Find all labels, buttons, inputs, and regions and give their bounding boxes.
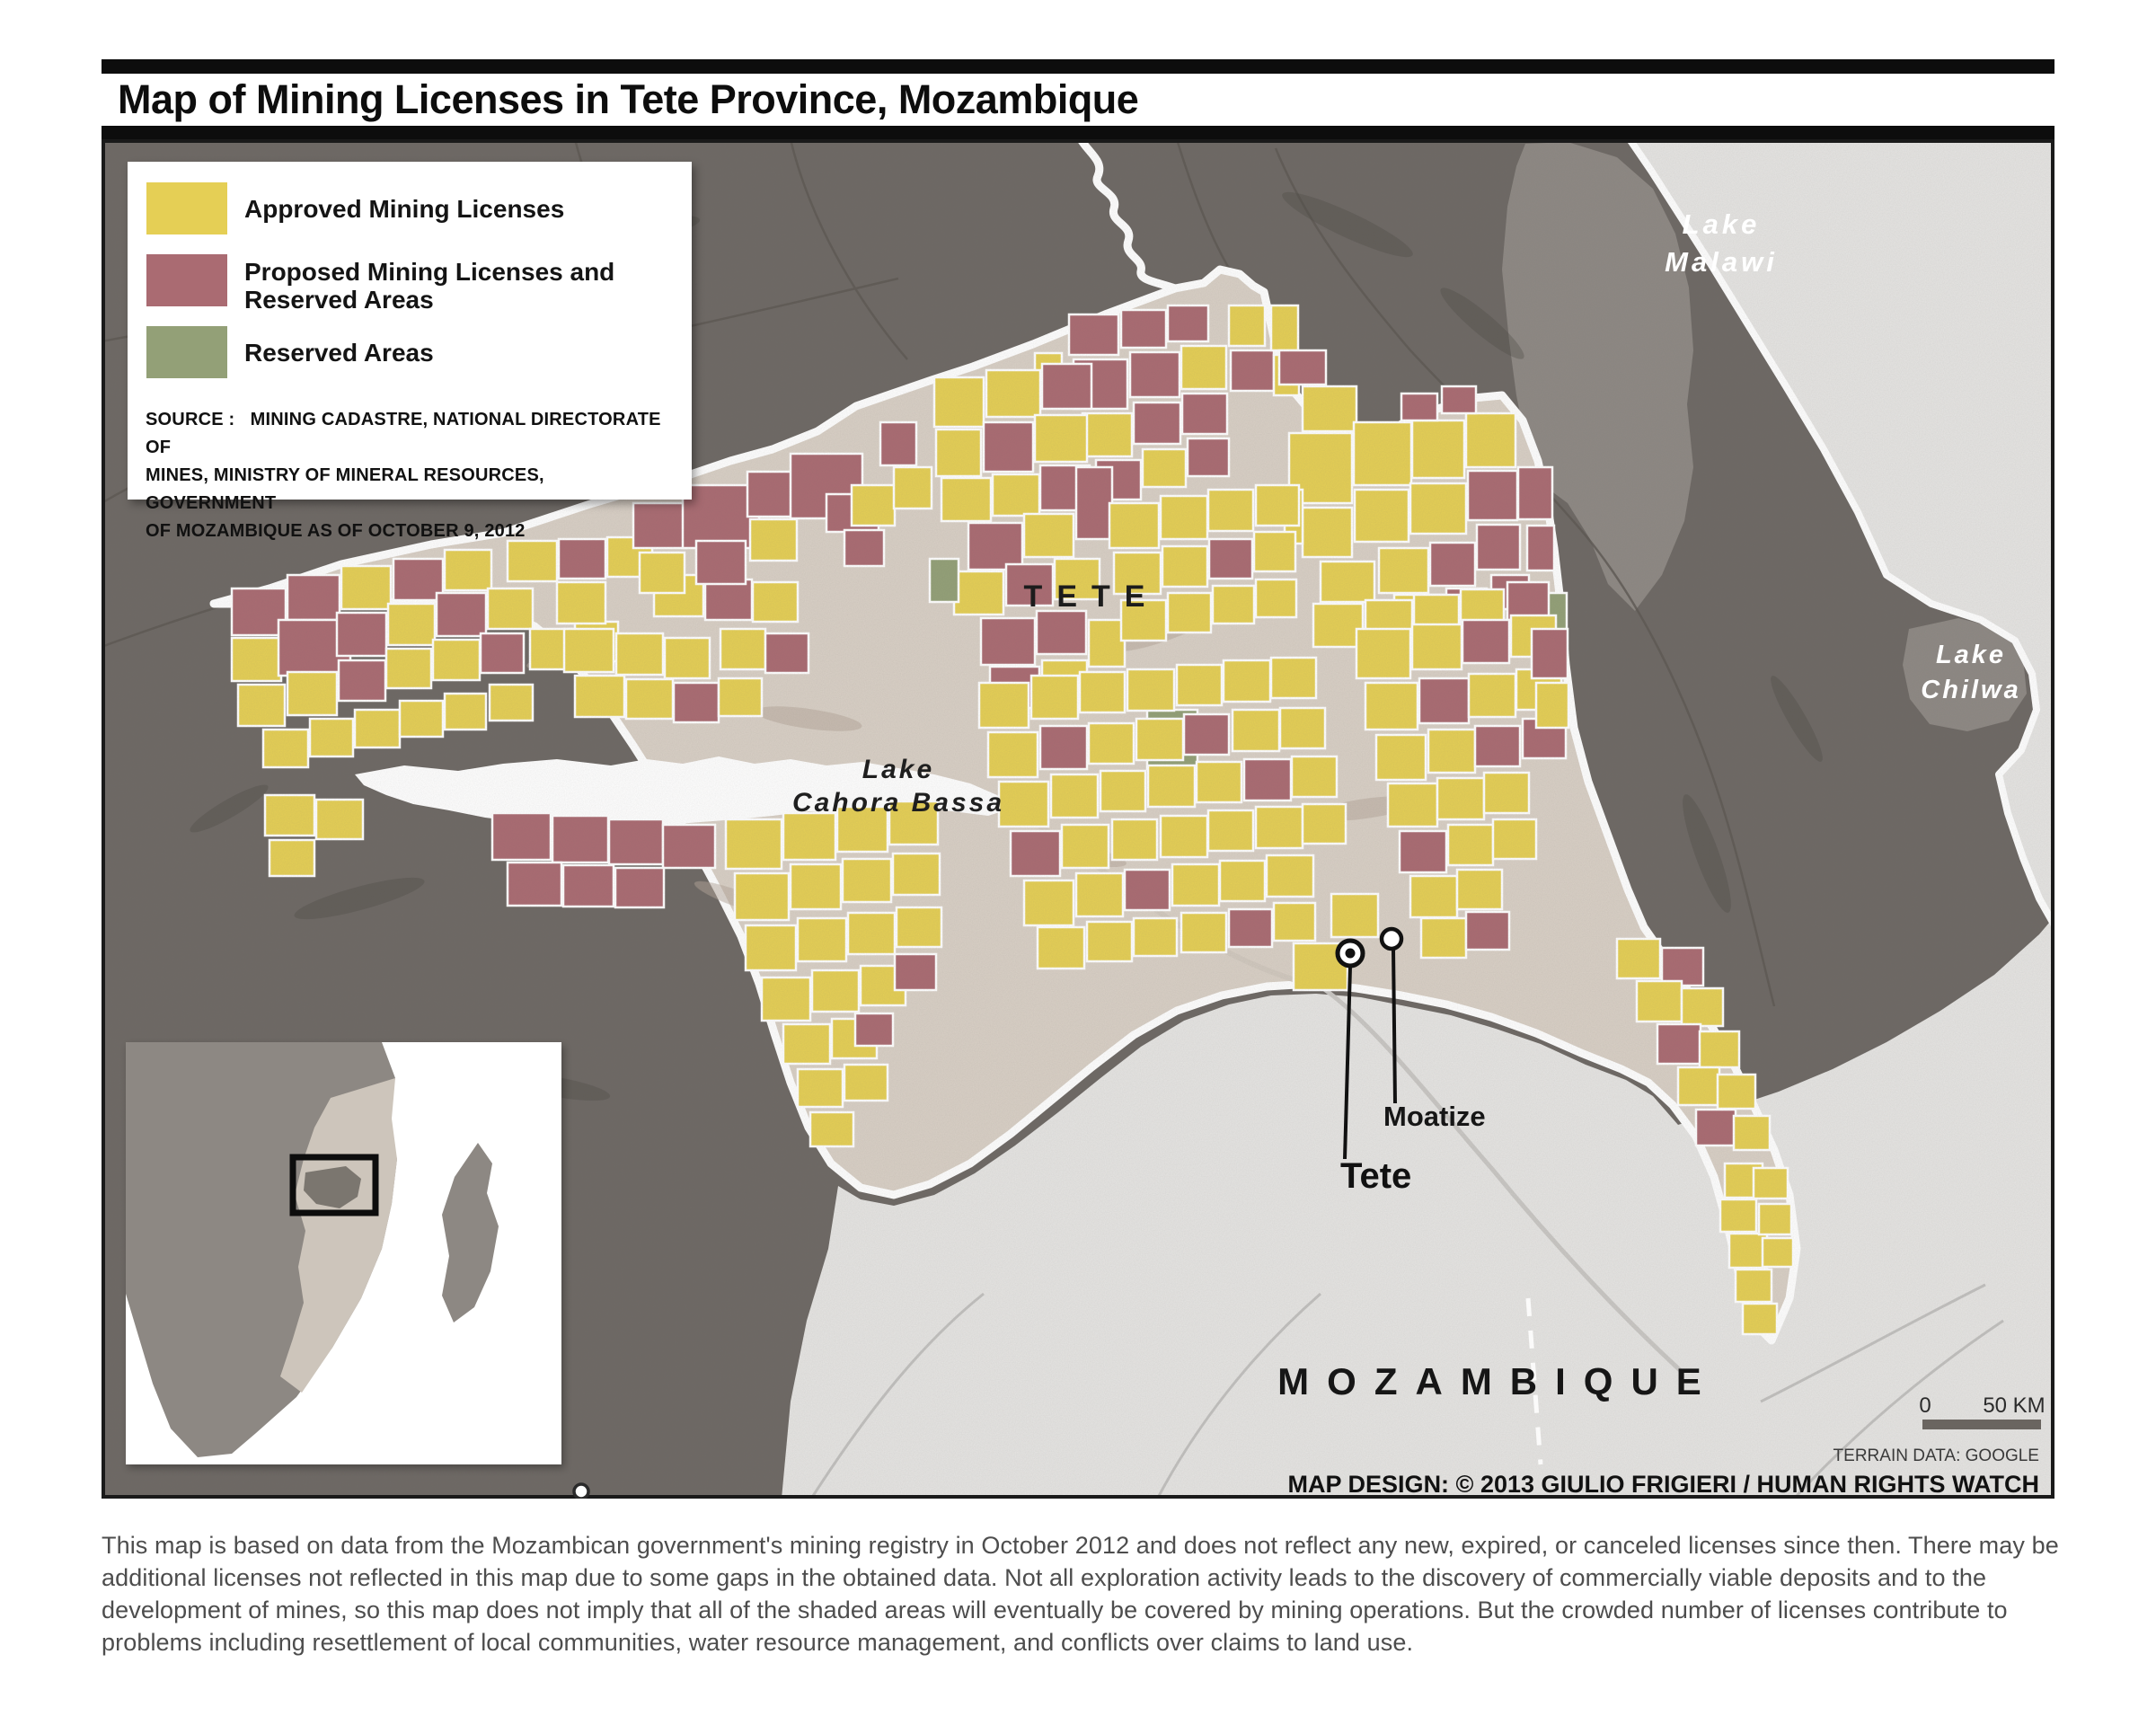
page: { "header": { "title": "Map of Mining Li… <box>0 0 2156 1725</box>
title-top-bar <box>102 59 2054 74</box>
tete-dot-icon <box>1346 949 1356 959</box>
region-label-tete: TETE <box>1024 579 1160 614</box>
inset-locator-map <box>126 1042 561 1464</box>
terrain-credit: TERRAIN DATA: GOOGLE <box>1833 1446 2039 1465</box>
scale-bar-rule <box>1922 1420 2041 1429</box>
moatize-dot-icon <box>1382 929 1401 949</box>
source-line-3: OF MOZAMBIQUE AS OF OCTOBER 9, 2012 <box>146 517 667 545</box>
page-title: Map of Mining Licenses in Tete Province,… <box>118 76 1138 123</box>
legend-swatch-approved <box>146 182 227 234</box>
design-credit: MAP DESIGN: © 2013 GIULIO FRIGIERI / HUM… <box>1288 1471 2039 1498</box>
edge-circle-icon <box>574 1484 588 1499</box>
lake-cahora-label-line2: Cahora Bassa <box>792 788 1004 818</box>
source-line-1: SOURCE : MINING CADASTRE, NATIONAL DIREC… <box>146 406 667 462</box>
legend-label-reserved: Reserved Areas <box>244 339 667 367</box>
legend-swatch-proposed <box>146 254 227 306</box>
legend-swatch-reserved <box>146 326 227 378</box>
legend: Approved Mining Licenses Proposed Mining… <box>128 162 692 500</box>
city-label-moatize: Moatize <box>1383 1101 1486 1132</box>
legend-label-approved: Approved Mining Licenses <box>244 195 667 223</box>
title-band: Map of Mining Licenses in Tete Province,… <box>102 74 2054 126</box>
title-bottom-bar <box>102 126 2054 139</box>
source-line-2: MINES, MINISTRY OF MINERAL RESOURCES, GO… <box>146 462 667 517</box>
country-label-mozambique: MOZAMBIQUE <box>1277 1360 1719 1402</box>
city-label-tete: Tete <box>1340 1156 1411 1196</box>
map-caption: This map is based on data from the Mozam… <box>102 1529 2060 1659</box>
lake-cahora-label-line1: Lake <box>862 755 934 784</box>
scale-zero-label: 0 <box>1919 1393 1931 1418</box>
lake-malawi-label-line1: Lake <box>1683 208 1761 240</box>
lake-chilwa-label-line2: Chilwa <box>1921 676 2020 704</box>
legend-source: SOURCE : MINING CADASTRE, NATIONAL DIREC… <box>146 406 667 545</box>
map-canvas: TETE Lake Cahora Bassa Lake Malawi Lake … <box>102 139 2054 1499</box>
lake-chilwa-label-line1: Lake <box>1936 641 2006 669</box>
legend-label-proposed: Proposed Mining Licenses and Reserved Ar… <box>244 258 667 314</box>
scale-distance-label: 50 KM <box>1983 1393 2045 1418</box>
lake-malawi-label-line2: Malawi <box>1665 246 1778 278</box>
inset-svg <box>126 1042 561 1464</box>
